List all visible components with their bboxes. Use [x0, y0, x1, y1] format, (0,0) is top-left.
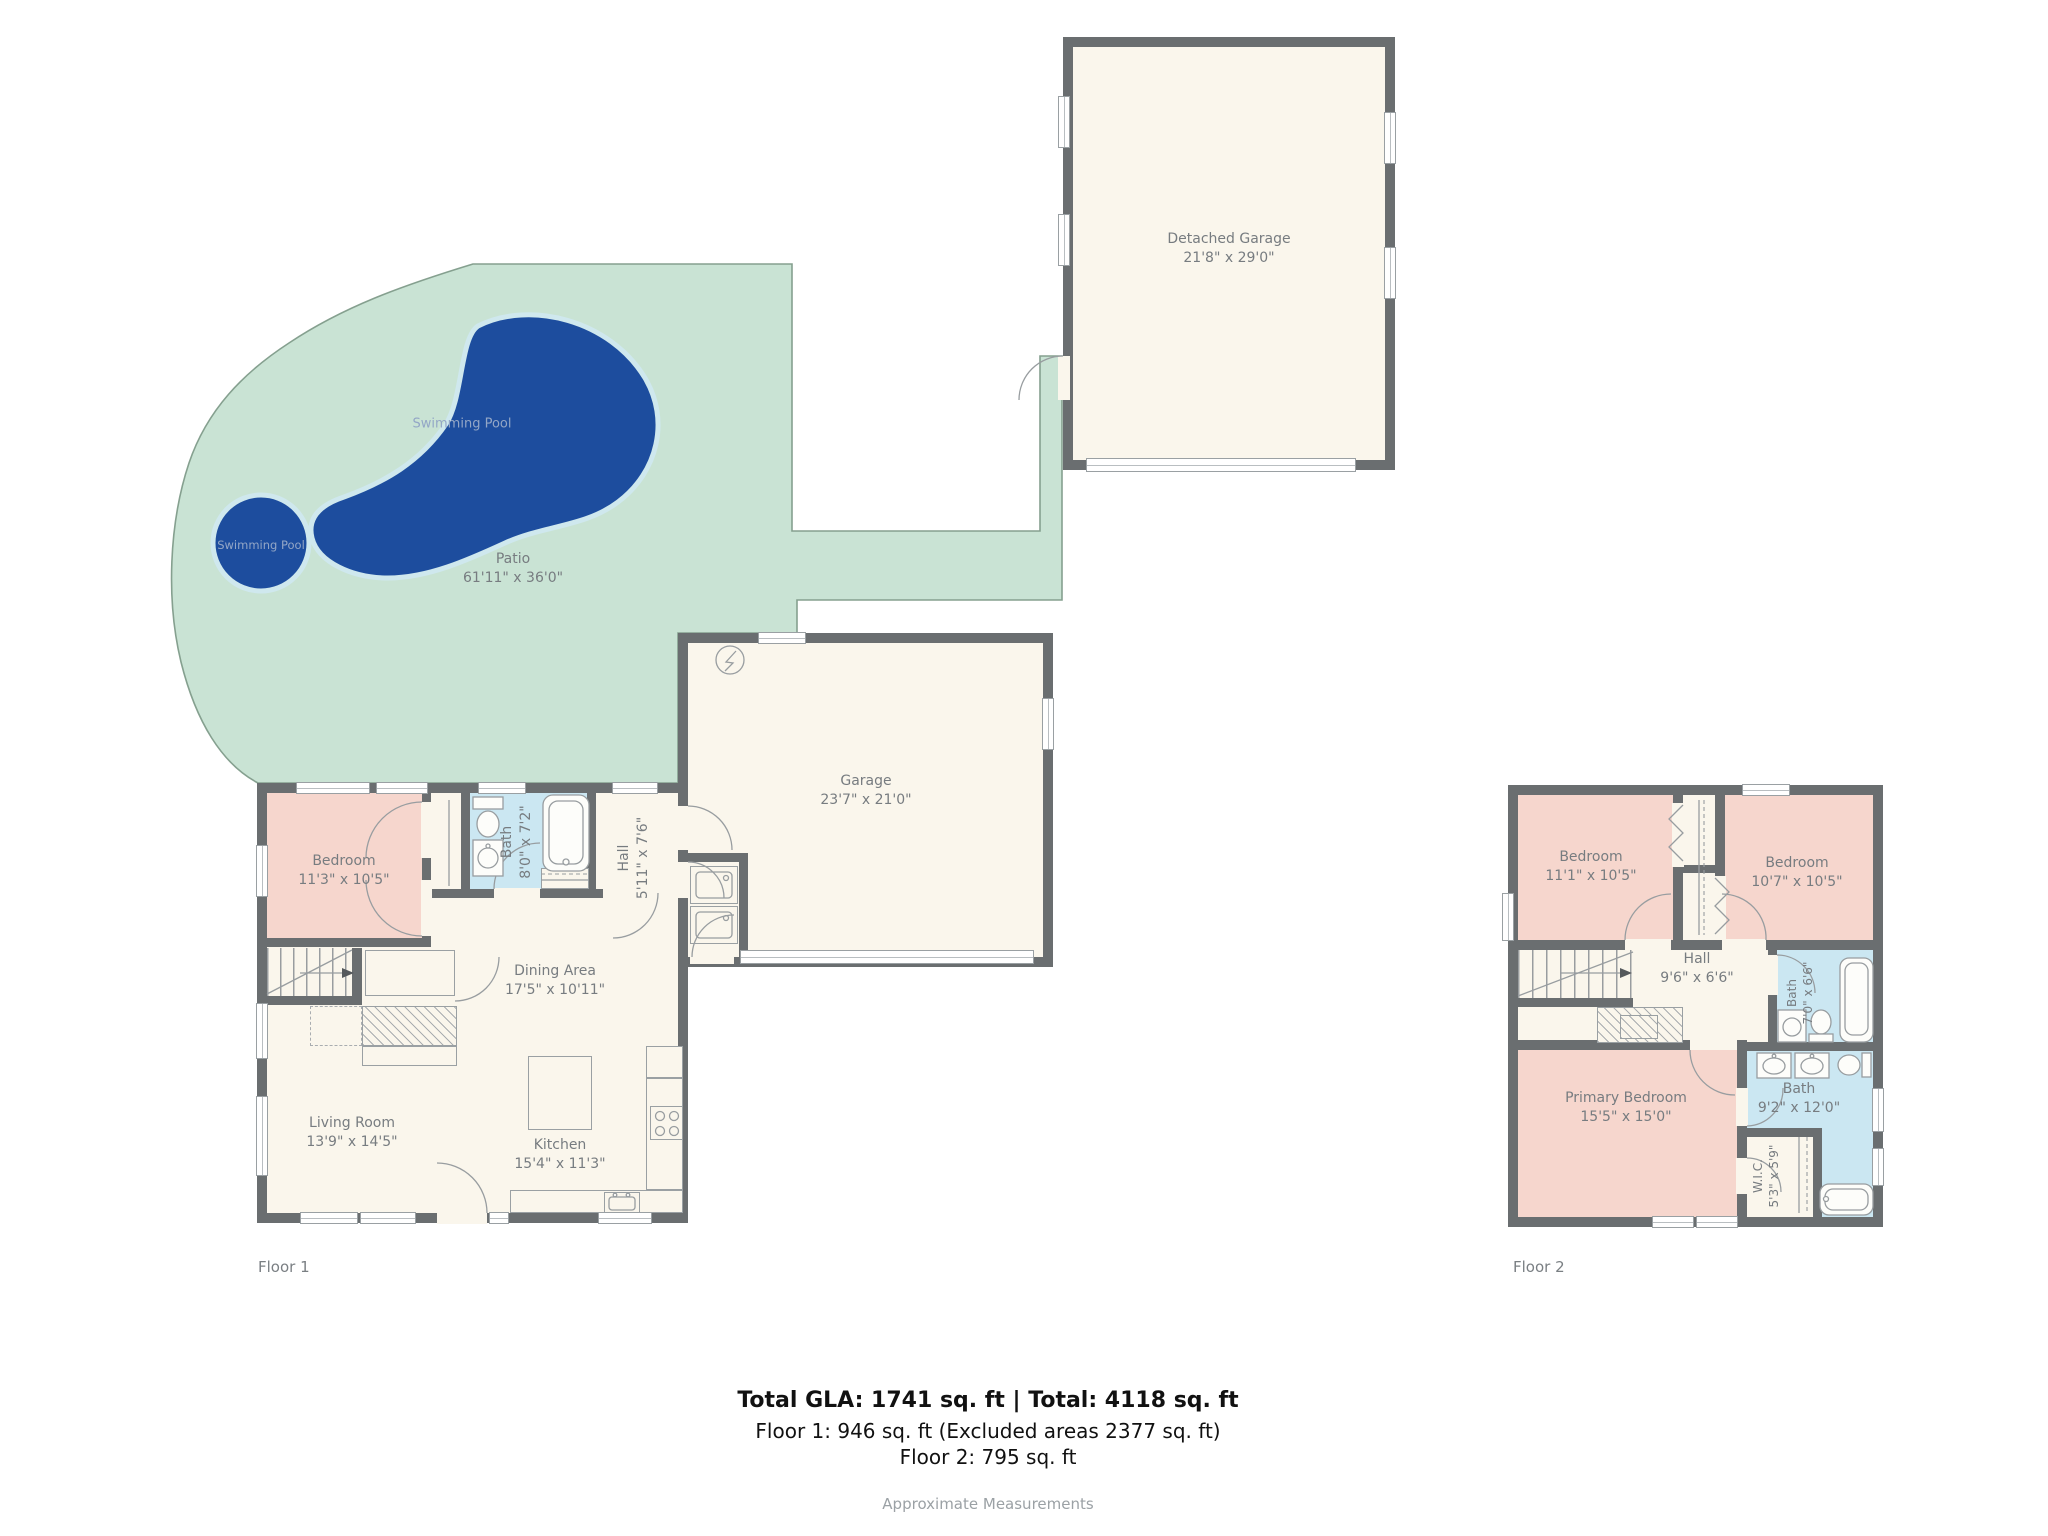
stove-burner [656, 1112, 665, 1121]
room-dims: 5'11" x 7'6" [634, 817, 653, 899]
room-dims: 8'0" x 7'2" [517, 805, 536, 878]
water-heater-icon [716, 646, 744, 674]
water-heater-icon [725, 651, 736, 671]
floor1-area-line: Floor 1: 946 sq. ft (Excluded areas 2377… [588, 1418, 1388, 1444]
room-dims: 9'2" x 12'0" [1758, 1099, 1840, 1118]
room-dims: 61'11" x 36'0" [463, 569, 563, 588]
stairs-arrow [342, 968, 354, 978]
wic-label: W.I.C. 5'3" x 5'9" [1750, 1145, 1782, 1208]
door-arc [1722, 894, 1766, 940]
kitchen-label: Kitchen 15'4" x 11'3" [514, 1136, 605, 1174]
toilet [1809, 1034, 1833, 1042]
stove-burner [670, 1127, 679, 1136]
room-name: Hall [615, 817, 634, 899]
room-name: Bedroom [1545, 848, 1636, 867]
dining-area-label: Dining Area 17'5" x 10'11" [505, 962, 605, 1000]
toilet [1838, 1055, 1860, 1075]
door-arc [1019, 356, 1063, 400]
toilet [477, 811, 499, 837]
door-arc [1625, 894, 1671, 940]
floor1-caption: Floor 1 [258, 1258, 310, 1276]
room-dims: 5'3" x 5'9" [1766, 1145, 1782, 1208]
door-arc [366, 802, 422, 858]
room-dims: 13'9" x 14'5" [306, 1133, 397, 1152]
stairs-arrow [1620, 968, 1632, 978]
stairs-cut-line [1518, 952, 1633, 996]
room-name: Bath [1784, 962, 1800, 1025]
room-name: Detached Garage [1167, 230, 1290, 249]
faucet [563, 859, 569, 865]
swimming-pool-label: Swimming Pool [217, 538, 305, 552]
room-name: Bath [1758, 1080, 1840, 1099]
bedroom-label: Bedroom 11'3" x 10'5" [298, 852, 389, 890]
door-arc [692, 915, 734, 957]
room-dims: 17'5" x 10'11" [505, 981, 605, 1000]
room-name: Hall [1660, 950, 1733, 969]
room-name: Primary Bedroom [1565, 1089, 1687, 1108]
faucet [486, 844, 490, 848]
room-name: Bedroom [298, 852, 389, 871]
room-dims: 15'4" x 11'3" [514, 1155, 605, 1174]
faucet [1824, 1197, 1829, 1202]
hall-label: Hall 9'6" x 6'6" [1660, 950, 1733, 988]
primary-bedroom-label: Primary Bedroom 15'5" x 15'0" [1565, 1089, 1687, 1127]
fixtures-overlay [0, 0, 2048, 1536]
measurement-summary: Total GLA: 1741 sq. ft | Total: 4118 sq.… [588, 1388, 1388, 1513]
total-gla-line: Total GLA: 1741 sq. ft | Total: 4118 sq.… [588, 1388, 1388, 1413]
room-dims: 10'7" x 10'5" [1751, 873, 1842, 892]
hall-label: Hall 5'11" x 7'6" [615, 817, 653, 899]
door-arc [688, 806, 732, 850]
garage-label: Garage 23'7" x 21'0" [820, 772, 911, 810]
room-name: Bedroom [1751, 854, 1842, 873]
faucet [1810, 1054, 1814, 1058]
faucet [613, 1193, 617, 1197]
room-name: Bath [498, 805, 517, 878]
bedroom-label: Bedroom 10'7" x 10'5" [1751, 854, 1842, 892]
stove-burner [656, 1127, 665, 1136]
patio-label: Patio 61'11" x 36'0" [463, 550, 563, 588]
bifold-door [1669, 805, 1683, 861]
door-arc [1690, 1050, 1735, 1095]
living-room-label: Living Room 13'9" x 14'5" [306, 1114, 397, 1152]
bifold-door [1715, 878, 1729, 934]
washer-knob [724, 876, 729, 881]
room-name: Kitchen [514, 1136, 605, 1155]
room-dims: 9'6" x 6'6" [1660, 969, 1733, 988]
room-dims: 15'5" x 15'0" [1565, 1108, 1687, 1127]
room-dims: 11'3" x 10'5" [298, 871, 389, 890]
room-dims: 21'8" x 29'0" [1167, 249, 1290, 268]
room-dims: 7'0" x 6'6" [1800, 962, 1816, 1025]
door-arc [688, 862, 724, 898]
door-arc [437, 1163, 487, 1213]
room-name: W.I.C. [1750, 1145, 1766, 1208]
toilet [1862, 1053, 1871, 1077]
room-name: Living Room [306, 1114, 397, 1133]
room-name: Patio [463, 550, 563, 569]
door-arc [455, 957, 499, 1001]
bath-label: Bath 8'0" x 7'2" [498, 805, 536, 878]
room-name: Dining Area [505, 962, 605, 981]
room-dims: 23'7" x 21'0" [820, 791, 911, 810]
bath-label: Bath 7'0" x 6'6" [1784, 962, 1816, 1025]
stairs-cut-line [267, 950, 352, 994]
faucet [1772, 1054, 1776, 1058]
detached-garage-label: Detached Garage 21'8" x 29'0" [1167, 230, 1290, 268]
floorplan-canvas: Swimming Pool Swimming Pool Patio 61'11"… [0, 0, 2048, 1536]
swimming-pool-label: Swimming Pool [413, 417, 512, 432]
door-arc [613, 893, 658, 938]
approximate-note: Approximate Measurements [588, 1495, 1388, 1513]
floor2-caption: Floor 2 [1513, 1258, 1565, 1276]
bedroom-label: Bedroom 11'1" x 10'5" [1545, 848, 1636, 886]
floor2-area-line: Floor 2: 795 sq. ft [588, 1444, 1388, 1470]
room-dims: 11'1" x 10'5" [1545, 867, 1636, 886]
stove-burner [670, 1112, 679, 1121]
bath-label: Bath 9'2" x 12'0" [1758, 1080, 1840, 1118]
faucet [626, 1193, 630, 1197]
room-name: Garage [820, 772, 911, 791]
kitchen-sink-basin [609, 1197, 635, 1210]
